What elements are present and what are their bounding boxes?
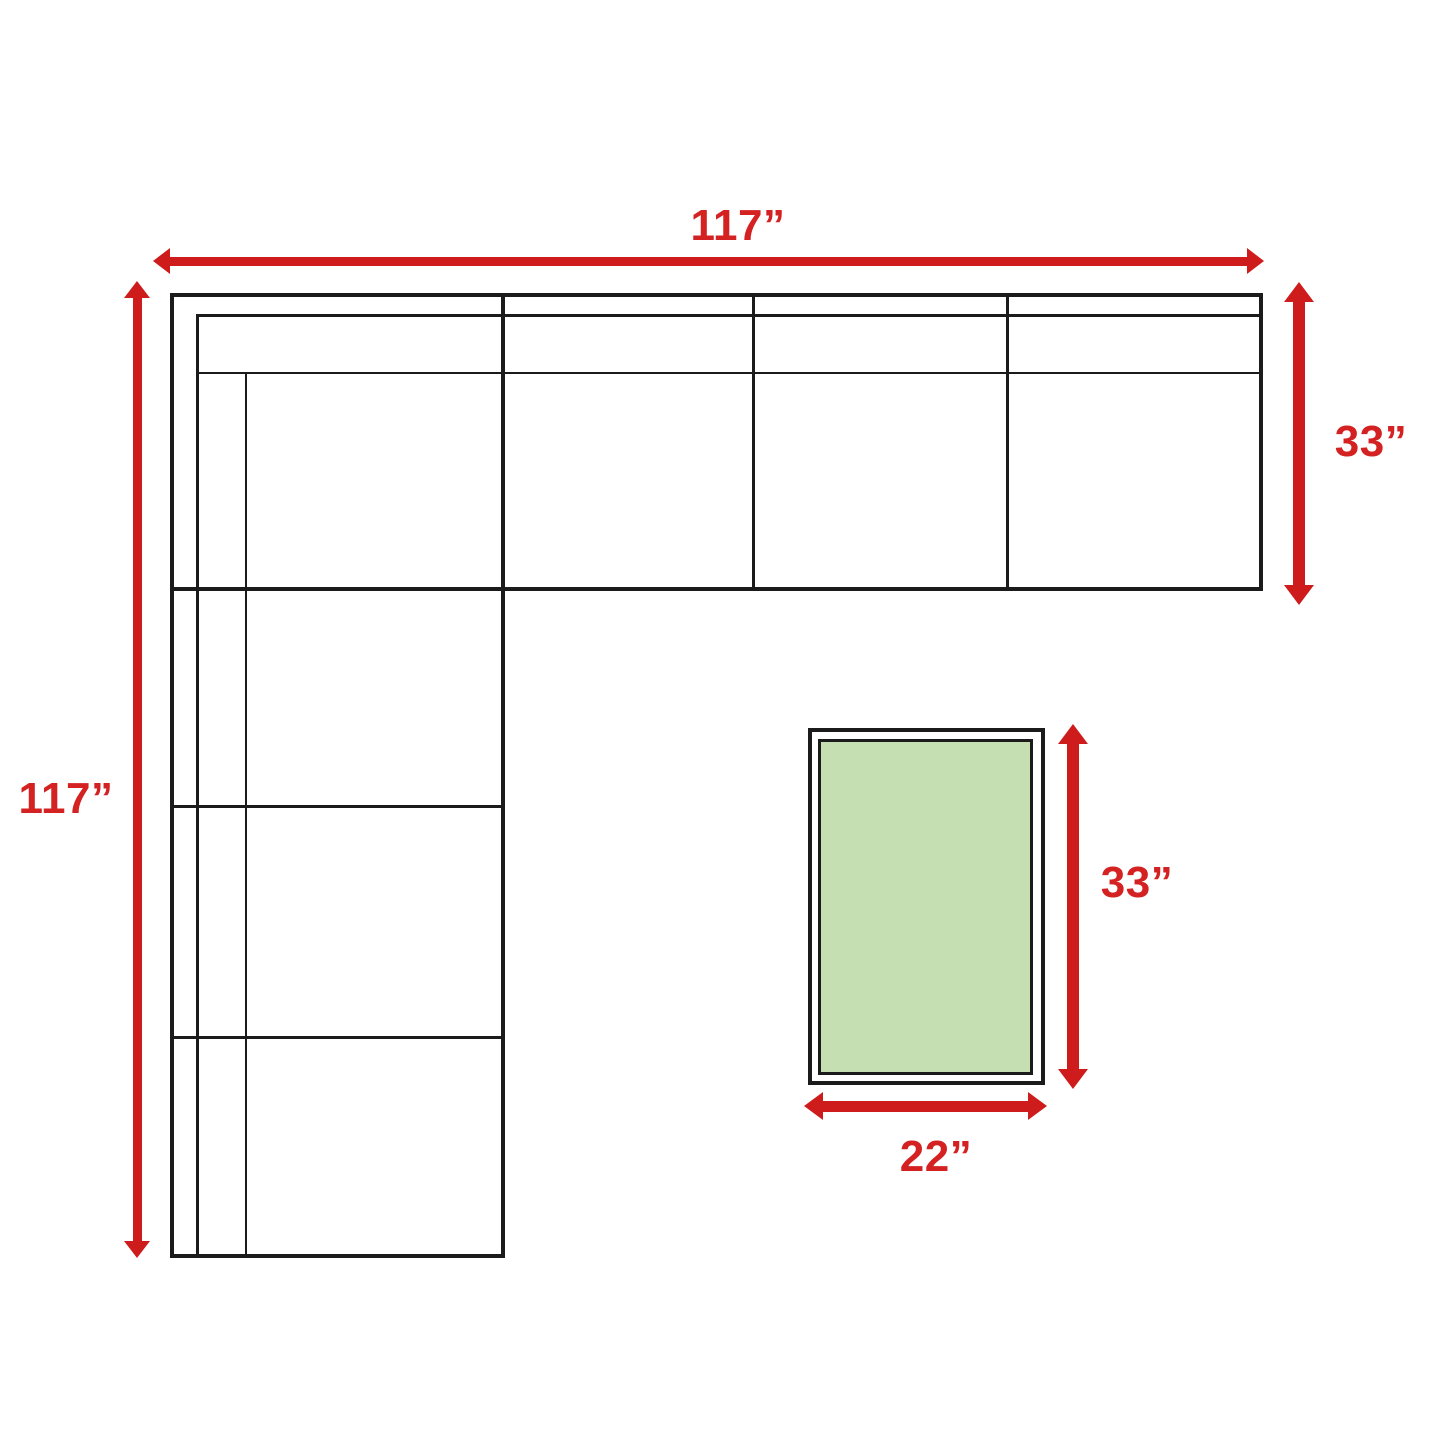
table-top-surface bbox=[818, 739, 1033, 1075]
sofa-width-arrow bbox=[153, 248, 1264, 274]
arrow-shaft bbox=[133, 296, 142, 1243]
sofa-side-depth-dimension-label: 33” bbox=[1335, 417, 1407, 467]
table-width-arrow bbox=[804, 1092, 1047, 1120]
sofa-right-edge bbox=[1259, 293, 1263, 590]
sofa-seat-divider-2 bbox=[1006, 293, 1009, 590]
arrow-head-left-icon bbox=[804, 1092, 823, 1120]
sofa-back-rail-top-line bbox=[196, 314, 1259, 317]
arrow-shaft bbox=[821, 1101, 1030, 1112]
sofa-width-dimension-label: 117” bbox=[691, 201, 786, 251]
arrow-head-down-icon bbox=[1284, 585, 1314, 605]
table-height-arrow bbox=[1058, 724, 1088, 1089]
arrow-head-down-icon bbox=[124, 1241, 150, 1258]
sofa-depth-dimension-label: 117” bbox=[19, 774, 114, 824]
sofa-backrest-front-line bbox=[196, 372, 1259, 374]
table-height-dimension-label: 33” bbox=[1101, 858, 1173, 908]
arrow-shaft bbox=[1293, 300, 1305, 587]
arrow-head-left-icon bbox=[153, 248, 170, 274]
dimension-diagram: 117” 117” 33” 33” 22” bbox=[0, 0, 1445, 1445]
sofa-front-edge bbox=[170, 587, 1263, 591]
arrow-head-up-icon bbox=[1284, 282, 1314, 302]
arrow-head-right-icon bbox=[1247, 248, 1264, 274]
arrow-head-up-icon bbox=[1058, 724, 1088, 744]
arrow-head-down-icon bbox=[1058, 1069, 1088, 1089]
arrow-shaft bbox=[168, 257, 1249, 266]
sofa-side-arrow bbox=[1284, 282, 1314, 605]
sofa-top-edge bbox=[170, 293, 1263, 297]
sofa-corner-right-edge bbox=[501, 293, 505, 1258]
sofa-arm-inner-line bbox=[245, 372, 247, 1258]
sofa-depth-arrow bbox=[124, 281, 150, 1258]
sofa-left-edge bbox=[170, 293, 174, 1258]
sofa-back-rail-left-line bbox=[196, 314, 199, 1258]
arrow-head-up-icon bbox=[124, 281, 150, 298]
arrow-head-right-icon bbox=[1028, 1092, 1047, 1120]
table-width-dimension-label: 22” bbox=[900, 1132, 972, 1182]
sofa-left-bottom-edge bbox=[170, 1254, 505, 1258]
sofa-seat-divider-1 bbox=[752, 293, 755, 590]
sofa-left-seat-divider-1 bbox=[170, 805, 505, 808]
arrow-shaft bbox=[1067, 742, 1079, 1071]
sofa-left-seat-divider-2 bbox=[170, 1036, 505, 1039]
